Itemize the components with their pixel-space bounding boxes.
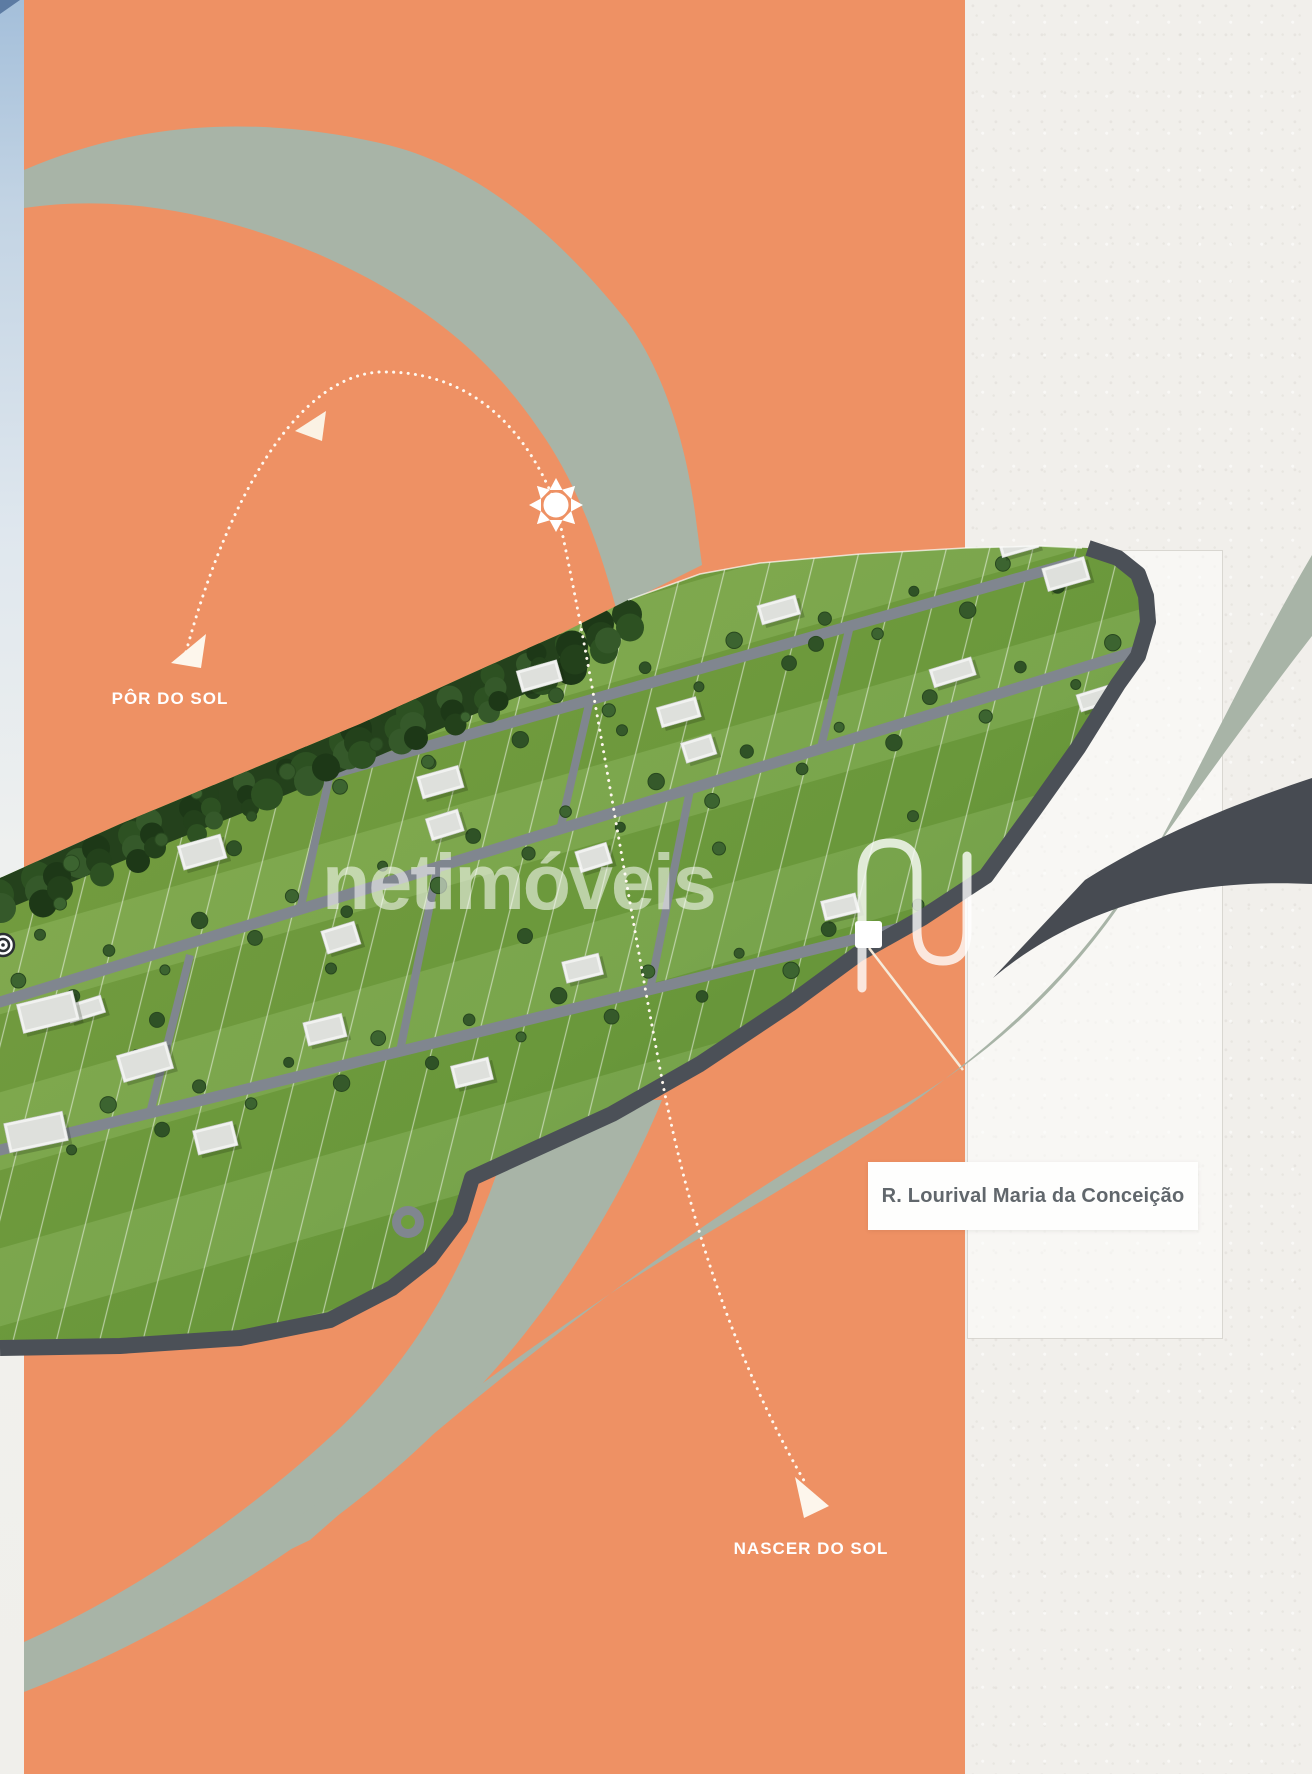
- sunset-label: PÔR DO SOL: [90, 689, 250, 709]
- street-label: R. Lourival Maria da Conceição: [882, 1185, 1185, 1208]
- photo-corner-detail: [0, 0, 20, 14]
- sunset-arrow-icon: [171, 634, 206, 668]
- collage-canvas: netimóveis PÔR DO SOL NASCER DO SOL R. L…: [0, 0, 1312, 1774]
- ring-arc: [24, 126, 702, 608]
- watermark-text: netimóveis: [322, 836, 715, 928]
- sunset-mid-arrow-icon: [295, 411, 326, 441]
- sun-icon: [529, 478, 583, 532]
- sunrise-label: NASCER DO SOL: [726, 1539, 896, 1559]
- street-label-box: R. Lourival Maria da Conceição: [868, 1162, 1198, 1230]
- sunrise-arrow-icon: [795, 1477, 829, 1518]
- house: [45, 803, 85, 834]
- netimoveis-logo-mark-icon: [846, 830, 986, 1005]
- compass-target-icon: [0, 934, 14, 956]
